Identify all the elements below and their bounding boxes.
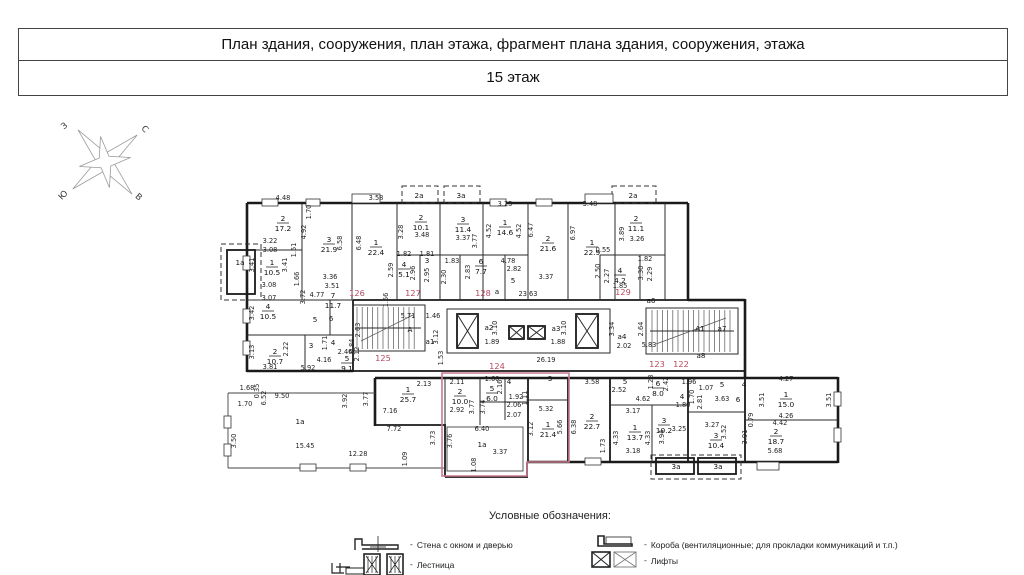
- room-area: 10.4: [708, 441, 725, 450]
- dimension-label: 3.42: [248, 306, 256, 321]
- dimension-label: 3.77: [362, 392, 370, 407]
- dimension-label: 1.70: [305, 205, 313, 220]
- room-number: 3: [714, 431, 719, 440]
- dimension-label: 6.52: [260, 391, 268, 406]
- dimension-label: 6.48: [355, 236, 363, 251]
- legend-title: Условные обозначения:: [430, 510, 670, 522]
- dimension-label: 3.22: [263, 237, 278, 245]
- apartment-number: 124: [489, 361, 505, 371]
- dimension-label: 6.38: [570, 420, 578, 435]
- dimension-label: 2.07: [507, 411, 522, 419]
- dimension-label: 3.37: [493, 448, 508, 456]
- dimension-label: 4.62: [636, 395, 651, 403]
- dimension-label: 2.13: [417, 380, 432, 388]
- dimension-label: 5.83: [642, 341, 657, 349]
- zone-label: 3а: [714, 462, 723, 471]
- room-number: 2: [281, 214, 286, 223]
- dimension-label: 0.79: [747, 413, 755, 428]
- zone-label: 2а: [415, 191, 424, 200]
- room-area: 11.4: [455, 225, 472, 234]
- dimension-label: 3.91: [741, 430, 749, 445]
- dimension-label: 4.33: [612, 431, 620, 446]
- legend-item-lifts: [590, 550, 638, 570]
- zone-label: а2: [485, 323, 494, 332]
- dimension-label: 23.63: [519, 290, 538, 298]
- dimension-label: 7.16: [383, 407, 398, 415]
- room-area: 6.0: [486, 394, 498, 403]
- zone-label: а3: [552, 324, 561, 333]
- room-number: 4: [618, 266, 623, 275]
- apartment-number: 126: [349, 288, 365, 298]
- dimension-label: 3.17: [626, 407, 641, 415]
- dimension-label: 5.92: [301, 364, 316, 372]
- legend-label-ducts: -Короба (вентиляционные; для прокладки к…: [644, 539, 898, 550]
- room-area: 21.6: [540, 244, 557, 253]
- zone-label: 4: [680, 392, 685, 401]
- dimension-label: 2.29: [646, 267, 654, 282]
- room-area: 14.6: [497, 228, 514, 237]
- legend-dash: -: [410, 539, 413, 549]
- room-number: 1: [784, 390, 789, 399]
- dimension-label: 1.71: [321, 336, 329, 351]
- zone-label: 4: [331, 338, 336, 347]
- apartment-number: 129: [615, 287, 631, 297]
- dimension-label: 1.70: [238, 400, 253, 408]
- zone-label: 5: [720, 380, 725, 389]
- dimension-label: 1.96: [682, 378, 697, 386]
- room-number: 6: [479, 257, 484, 266]
- room-area: 11.7: [325, 301, 342, 310]
- dimension-label: 1.53: [437, 351, 445, 366]
- apartment-number: 128: [475, 288, 491, 298]
- dimension-label: 3.92: [341, 394, 349, 409]
- room-number: 2: [634, 214, 639, 223]
- legend-label-wall: -Стена с окном и дверью: [410, 539, 513, 550]
- drawing-sheet: План здания, сооружения, план этажа, фра…: [0, 0, 1024, 575]
- dimension-label: 2.83: [464, 265, 472, 280]
- dimension-label: 2.95: [423, 268, 431, 283]
- room-number: 4: [402, 260, 407, 269]
- room-number: 2: [458, 387, 463, 396]
- zone-label: 3: [548, 374, 553, 383]
- zone-label: 5: [511, 276, 516, 285]
- zone-label: А1: [695, 324, 705, 333]
- dimension-label: 1.66: [293, 272, 301, 287]
- zone-label: 4: [742, 380, 747, 389]
- legend-item-ducts: [596, 534, 636, 551]
- dimension-label: 5.32: [539, 405, 554, 413]
- dimension-label: 4.52: [485, 224, 493, 239]
- room-area: 21.4: [540, 430, 557, 439]
- room-number: 1: [546, 420, 551, 429]
- room-area: 17.2: [275, 224, 291, 233]
- dimension-label: 1.28: [647, 375, 655, 390]
- dimension-label: 1.56: [382, 293, 390, 308]
- zone-label: 3а: [457, 191, 466, 200]
- zone-label: а6: [647, 296, 656, 305]
- zone-label: А: [408, 325, 413, 334]
- room-number: 5: [490, 384, 495, 393]
- dimension-label: 3.41: [281, 258, 289, 273]
- zone-label: а1: [426, 337, 435, 346]
- zone-label: 1а: [296, 417, 305, 426]
- dimension-label: 5.66: [556, 420, 564, 435]
- zone-label: 6: [329, 314, 334, 323]
- dimension-label: 3.51: [758, 393, 766, 408]
- dimension-label: 2.82: [507, 265, 522, 273]
- room-number: 1: [406, 385, 411, 394]
- dimension-label: 3.51: [325, 282, 340, 290]
- dimension-label: 12.28: [349, 450, 368, 458]
- zone-label: 5: [623, 377, 628, 386]
- dimension-label: 26.19: [537, 356, 556, 364]
- dimension-label: 4.77: [310, 291, 325, 299]
- lifts-icon: [590, 550, 638, 568]
- zone-label: 2а: [629, 191, 638, 200]
- dimension-label: 15.45: [296, 442, 315, 450]
- dimension-label: 3.08: [262, 281, 277, 289]
- room-number: 7: [331, 291, 336, 300]
- room-number: 3: [461, 215, 466, 224]
- room-area: 25.7: [400, 395, 417, 404]
- dimension-label: 3.77: [471, 234, 479, 249]
- ducts-icon: [596, 534, 636, 549]
- room-area: 10.1: [413, 223, 430, 232]
- dimension-label: 3.18: [626, 447, 641, 455]
- room-number: 1: [633, 423, 638, 432]
- room-area: 10.7: [267, 357, 284, 366]
- dimension-label: 2.52: [612, 386, 627, 394]
- dimension-label: 3.51: [825, 393, 833, 408]
- dimension-label: 6.40: [475, 425, 490, 433]
- dimension-label: 3.07: [262, 294, 277, 302]
- room-number: 1: [590, 238, 595, 247]
- dimension-label: 1.83: [445, 257, 460, 265]
- dimension-label: 1.46: [426, 312, 441, 320]
- dimension-label: 3.48: [415, 231, 430, 239]
- dimension-label: 2.81: [696, 395, 704, 410]
- zone-label: 5: [313, 315, 318, 324]
- legend-dash: -: [644, 539, 647, 549]
- dimension-label: 4.42: [773, 419, 788, 427]
- dimension-label: 9.50: [275, 392, 290, 400]
- room-number: 3: [662, 416, 667, 425]
- dimension-label: 1.11: [521, 391, 529, 406]
- compass-north-label: С: [139, 124, 150, 135]
- dimension-label: 2.92: [450, 406, 465, 414]
- floor-plan: З С Ю В: [0, 0, 1024, 575]
- room-area: 21.9: [321, 245, 338, 254]
- legend-label-stairs: -Лестница: [410, 559, 454, 570]
- legend-dash: -: [644, 555, 647, 565]
- dimension-label: 4.92: [300, 225, 308, 240]
- dimension-label: 3.77: [468, 400, 476, 415]
- dimension-label: 3.89: [618, 227, 626, 242]
- dimension-label: 2.11: [450, 378, 465, 386]
- zone-label: а8: [697, 351, 706, 360]
- zone-label: а4: [618, 332, 627, 341]
- dimension-label: 2.30: [440, 270, 448, 285]
- balcony-1a-apt124: [447, 427, 523, 471]
- compass-south-label: Ю: [57, 189, 71, 203]
- dimension-label: 3.58: [369, 194, 384, 202]
- dimension-label: 1.82: [638, 255, 653, 263]
- dimension-label: 4.16: [317, 356, 332, 364]
- dimension-label: 3.08: [263, 246, 278, 254]
- room-area: 22.7: [584, 422, 601, 431]
- zone-label: а: [495, 287, 499, 296]
- dimension-label: 7.72: [387, 425, 402, 433]
- zone-label: 3а: [672, 462, 681, 471]
- dimension-label: 2.22: [282, 342, 290, 357]
- room-area: 5.1: [398, 270, 410, 279]
- compass-west-label: З: [59, 121, 70, 132]
- dimension-label: 1.07: [699, 384, 714, 392]
- dimension-label: 1.82: [397, 250, 412, 258]
- dimension-label: 3.72: [299, 290, 307, 305]
- dimension-label: 3.23: [498, 200, 513, 208]
- room-number: 2: [419, 213, 424, 222]
- room-area: 22.9: [584, 248, 601, 257]
- dimension-label: 2.59: [387, 263, 395, 278]
- dimension-label: 5.68: [768, 447, 783, 455]
- room-number: 2: [774, 427, 779, 436]
- dimension-label: 3.48: [583, 200, 598, 208]
- legend-dash: -: [410, 559, 413, 569]
- dimension-label: 3.28: [397, 225, 405, 240]
- zone-label: а7: [718, 324, 727, 333]
- sanitary-icon: [330, 561, 378, 575]
- dimension-label: 4.48: [276, 194, 291, 202]
- room-area: 10.5: [264, 268, 281, 277]
- dimension-label: 3.73: [429, 431, 437, 446]
- room-number: 5: [345, 354, 350, 363]
- legend-label-lifts: -Лифты: [644, 555, 678, 566]
- dimension-label: 2.63: [354, 323, 362, 338]
- room-area: 4.2: [614, 276, 626, 285]
- apartment-number: 122: [673, 359, 689, 369]
- dimension-label: 3.12: [527, 422, 535, 437]
- zone-label: 6: [736, 395, 741, 404]
- dimension-label: 1.51: [290, 243, 298, 258]
- dimension-label: 1.73: [599, 439, 607, 454]
- dimension-label: 3.30: [637, 266, 645, 281]
- apartment-number: 125: [375, 353, 391, 363]
- dimension-label: 5.71: [401, 312, 416, 320]
- room-number: 1: [270, 258, 275, 267]
- room-number: 2: [590, 412, 595, 421]
- zone-label: 1а: [478, 440, 487, 449]
- dimension-label: 4.33: [644, 431, 652, 446]
- dimension-label: 1.89: [485, 338, 500, 346]
- zone-label: 3: [309, 341, 314, 350]
- zone-label: 3: [425, 256, 430, 265]
- room-area: 11.1: [628, 224, 645, 233]
- apartment-number: 127: [405, 288, 421, 298]
- apartment-number: 123: [649, 359, 665, 369]
- room-number: 1: [503, 218, 508, 227]
- bay-window: [757, 462, 779, 470]
- dimension-label: 6.97: [569, 226, 577, 241]
- dimension-label: 4.27: [779, 375, 794, 383]
- dimension-label: 3.41: [248, 258, 256, 273]
- plan-labels: 4.483.583.233.481.704.926.586.483.483.28…: [230, 191, 833, 472]
- dimension-label: 3.27: [705, 421, 720, 429]
- dimension-label: 3.76: [446, 434, 454, 449]
- dimension-label: 1.88: [551, 338, 566, 346]
- dimension-label: 4.78: [501, 257, 516, 265]
- dimension-label: 3.26: [630, 235, 645, 243]
- room-area: 15.0: [778, 400, 795, 409]
- dimension-label: 3.10: [560, 321, 568, 336]
- room-area: 10.0: [452, 397, 469, 406]
- dimension-label: 3.36: [323, 273, 338, 281]
- dimension-label: 2.02: [617, 342, 632, 350]
- dimension-label: 2.06: [507, 401, 522, 409]
- room-number: 2: [546, 234, 551, 243]
- dimension-label: 6.47: [527, 223, 535, 238]
- dimension-label: 3.34: [608, 322, 616, 337]
- room-area: 10.2: [656, 426, 672, 435]
- dimension-label: 3.37: [539, 273, 554, 281]
- room-area: 7.7: [475, 267, 487, 276]
- zone-label: 1а: [236, 258, 245, 267]
- dimension-label: 1.08: [470, 458, 478, 473]
- dimension-label: 3.63: [715, 395, 730, 403]
- wall-window-door-icon: [352, 536, 402, 552]
- legend-item-partial: [330, 561, 378, 575]
- dimension-label: 2.27: [603, 269, 611, 284]
- room-number: 1: [374, 238, 379, 247]
- dimension-label: 2.96: [409, 266, 417, 281]
- dimension-label: 3.50: [230, 434, 238, 449]
- dimension-label: 1.09: [401, 452, 409, 467]
- dimension-label: 2.50: [594, 264, 602, 279]
- compass-east-label: В: [133, 192, 144, 204]
- dimension-label: 2.16: [496, 380, 504, 395]
- room-area: 13.7: [627, 433, 644, 442]
- dimension-label: 2.64: [637, 322, 645, 337]
- dimension-label: 3.25: [672, 425, 687, 433]
- zone-label: 4: [507, 377, 512, 386]
- room-area: 22.4: [368, 248, 385, 257]
- room-number: 2: [273, 347, 278, 356]
- dimension-label: 1.70: [688, 390, 696, 405]
- room-area: 10.5: [260, 312, 277, 321]
- room-area: 9.1: [341, 364, 353, 373]
- room-area: 8.0: [652, 389, 664, 398]
- compass-rose: З С Ю В: [57, 121, 150, 203]
- room-area: 18.7: [768, 437, 785, 446]
- room-number: 4: [266, 302, 271, 311]
- room-number: 6: [656, 379, 661, 388]
- dimension-label: 2.12: [353, 347, 361, 362]
- dimension-label: 4.52: [515, 224, 523, 239]
- dimension-label: 3.52: [720, 425, 728, 440]
- room-number: 3: [327, 235, 332, 244]
- dimension-label: 3.37: [456, 234, 471, 242]
- dimension-label: 3.58: [585, 378, 600, 386]
- dimension-label: 3.13: [248, 345, 256, 360]
